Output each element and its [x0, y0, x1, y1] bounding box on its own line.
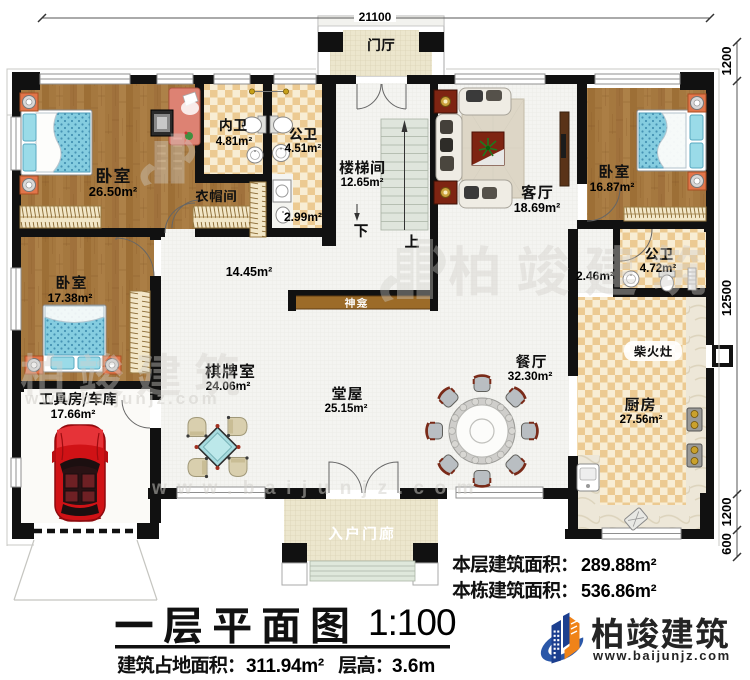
- svg-text:289.88m²: 289.88m²: [581, 555, 657, 575]
- svg-text:www.baijunjz.com: www.baijunjz.com: [24, 389, 220, 408]
- svg-text:www.baijunjz.com: www.baijunjz.com: [151, 478, 484, 499]
- svg-text:21100: 21100: [359, 10, 392, 24]
- svg-text:27.56m²: 27.56m²: [620, 414, 663, 426]
- svg-text:14.45m²: 14.45m²: [226, 265, 273, 279]
- svg-text:1200: 1200: [719, 47, 734, 76]
- svg-text:16.87m²: 16.87m²: [590, 180, 635, 194]
- svg-text:26.50m²: 26.50m²: [89, 184, 138, 199]
- svg-text:17.66m²: 17.66m²: [51, 407, 96, 421]
- svg-text:32.30m²: 32.30m²: [508, 369, 553, 383]
- svg-text:1:100: 1:100: [368, 602, 456, 643]
- svg-text:4.51m²: 4.51m²: [285, 143, 322, 155]
- svg-text:4.81m²: 4.81m²: [216, 136, 253, 148]
- svg-text:3.6m: 3.6m: [392, 656, 435, 677]
- svg-text:www.baijunjz.com: www.baijunjz.com: [592, 648, 731, 663]
- svg-text:17.38m²: 17.38m²: [48, 291, 93, 305]
- svg-text:12.65m²: 12.65m²: [341, 177, 384, 189]
- svg-text:25.15m²: 25.15m²: [325, 403, 368, 415]
- svg-text:1200: 1200: [719, 498, 734, 527]
- svg-text:18.69m²: 18.69m²: [514, 201, 561, 215]
- svg-text:311.94m²: 311.94m²: [246, 656, 324, 677]
- svg-text:600: 600: [719, 533, 734, 555]
- svg-text:536.86m²: 536.86m²: [581, 581, 657, 601]
- svg-text:12500: 12500: [719, 280, 734, 316]
- svg-text:2.99m²: 2.99m²: [284, 210, 322, 224]
